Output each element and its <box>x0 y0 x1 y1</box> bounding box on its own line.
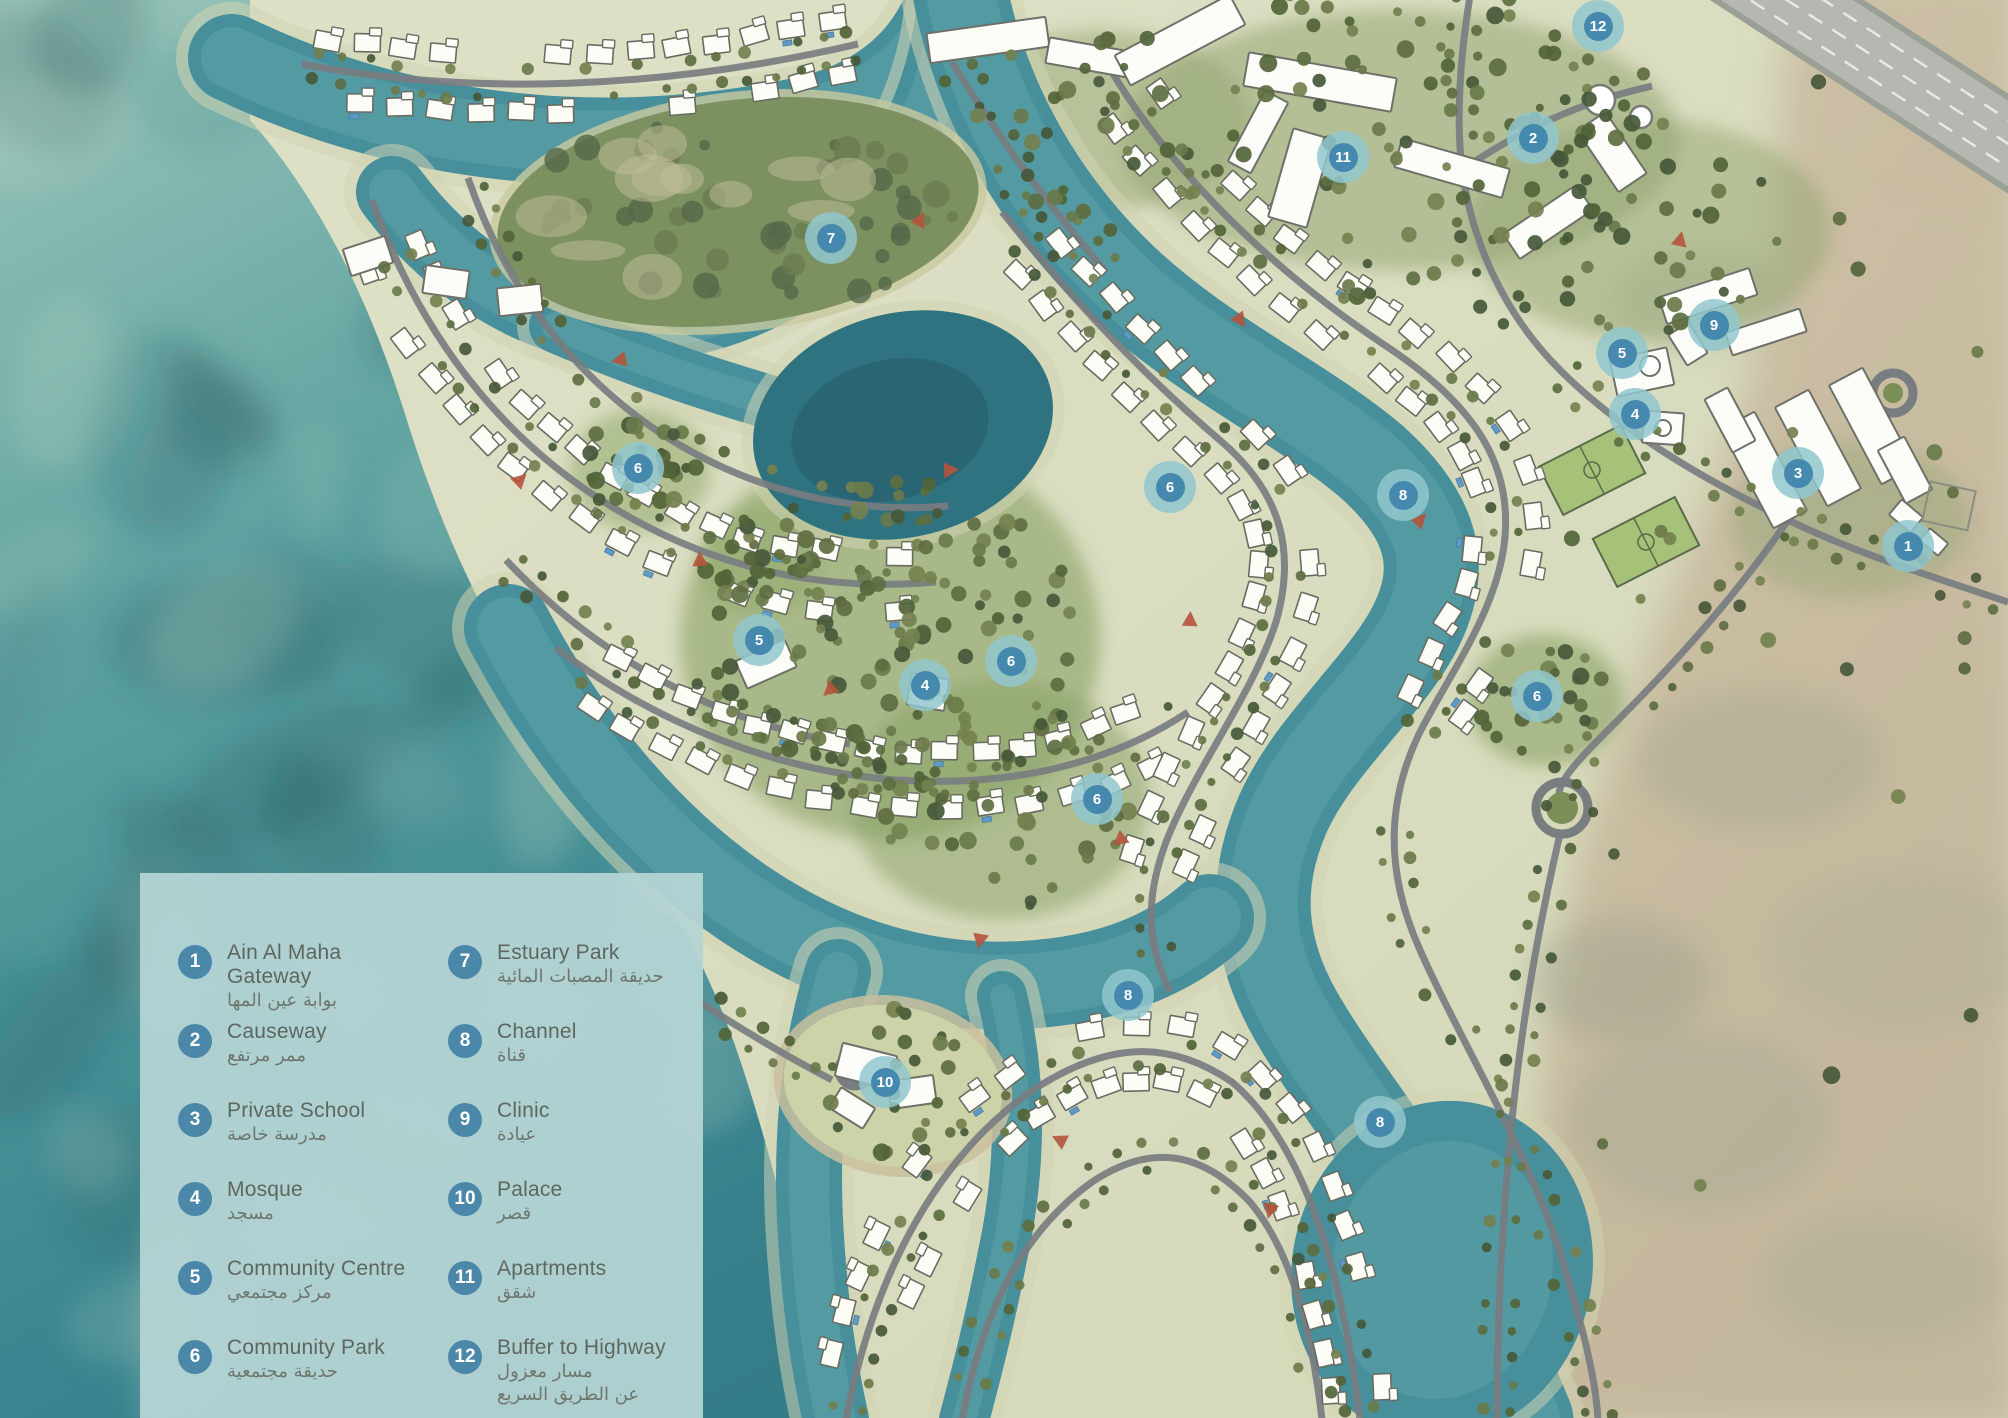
legend-number-badge: 5 <box>178 1261 212 1295</box>
marker-dot: 7 <box>817 224 846 253</box>
map-marker-6-15[interactable]: 6 <box>1511 670 1563 722</box>
legend-label-ar: مسار معزول عن الطريق السريع <box>497 1361 666 1406</box>
marker-dot: 10 <box>871 1068 900 1097</box>
legend-label-en: Apartments <box>497 1257 606 1281</box>
marker-dot: 5 <box>1608 339 1637 368</box>
marker-number: 4 <box>1631 407 1639 422</box>
marker-dot: 8 <box>1389 481 1418 510</box>
legend-label-en: Buffer to Highway <box>497 1336 666 1360</box>
map-marker-6-8[interactable]: 6 <box>612 442 664 494</box>
legend-item-3: 3Private Schoolمدرسة خاصة <box>140 1099 410 1178</box>
map-marker-11-2[interactable]: 11 <box>1317 131 1369 183</box>
legend-label-en: Palace <box>497 1178 562 1202</box>
legend-item-1: 1Ain Al Maha Gatewayبوابة عين المها <box>140 941 410 1020</box>
legend-item-9: 9Clinicعيادة <box>410 1099 703 1178</box>
legend-number-badge: 3 <box>178 1103 212 1137</box>
legend-label-en: Private School <box>227 1099 365 1123</box>
marker-number: 1 <box>1904 539 1912 554</box>
legend-item-7: 7Estuary Parkحديقة المصبات المائية <box>410 941 703 1020</box>
legend-label-ar: عيادة <box>497 1124 550 1147</box>
legend-label-ar: ممر مرتفع <box>227 1045 327 1068</box>
legend-label-ar: قصر <box>497 1203 562 1226</box>
legend-item-11: 11Apartmentsشقق <box>410 1257 703 1336</box>
marker-dot: 6 <box>1523 682 1552 711</box>
legend-label-ar: حديقة المصبات المائية <box>497 966 664 989</box>
map-marker-9-4[interactable]: 9 <box>1688 299 1740 351</box>
legend-item-10: 10Palaceقصر <box>410 1178 703 1257</box>
marker-number: 6 <box>1093 792 1101 807</box>
map-marker-12-0[interactable]: 12 <box>1572 0 1624 52</box>
marker-dot: 1 <box>1894 532 1923 561</box>
map-marker-5-5[interactable]: 5 <box>1596 327 1648 379</box>
marker-number: 6 <box>634 461 642 476</box>
map-marker-8-17[interactable]: 8 <box>1102 969 1154 1021</box>
map-marker-4-6[interactable]: 4 <box>1609 388 1661 440</box>
legend-label-en: Estuary Park <box>497 941 664 965</box>
marker-number: 10 <box>877 1075 894 1090</box>
legend-number-badge: 2 <box>178 1024 212 1058</box>
marker-number: 5 <box>1618 346 1626 361</box>
legend-list: 1Ain Al Maha Gatewayبوابة عين المها2Caus… <box>140 941 703 1415</box>
marker-number: 11 <box>1335 150 1351 165</box>
map-marker-10-18[interactable]: 10 <box>859 1056 911 1108</box>
map-marker-8-10[interactable]: 8 <box>1377 469 1429 521</box>
map-marker-1-11[interactable]: 1 <box>1882 520 1934 572</box>
marker-dot: 2 <box>1519 124 1548 153</box>
legend-number-badge: 10 <box>448 1182 482 1216</box>
map-marker-6-16[interactable]: 6 <box>1071 773 1123 825</box>
legend-label-en: Clinic <box>497 1099 550 1123</box>
marker-number: 6 <box>1166 480 1174 495</box>
legend-number-badge: 12 <box>448 1340 482 1374</box>
legend-number-badge: 11 <box>448 1261 482 1295</box>
masterplan-page: 12211795436681564668108 1Ain Al Maha Gat… <box>0 0 2008 1418</box>
marker-number: 12 <box>1590 19 1607 34</box>
marker-number: 6 <box>1533 689 1541 704</box>
map-marker-6-9[interactable]: 6 <box>1144 461 1196 513</box>
marker-dot: 6 <box>1083 785 1112 814</box>
map-marker-3-7[interactable]: 3 <box>1772 447 1824 499</box>
legend-label-en: Community Centre <box>227 1257 405 1281</box>
marker-number: 4 <box>921 678 929 693</box>
legend-label-ar: حديقة مجتمعية <box>227 1361 385 1384</box>
legend-number-badge: 8 <box>448 1024 482 1058</box>
marker-dot: 4 <box>911 671 940 700</box>
legend-label-en: Ain Al Maha Gateway <box>227 941 410 989</box>
legend-label-en: Channel <box>497 1020 577 1044</box>
marker-dot: 11 <box>1329 143 1358 172</box>
marker-number: 8 <box>1399 488 1407 503</box>
marker-dot: 6 <box>624 454 653 483</box>
legend-number-badge: 4 <box>178 1182 212 1216</box>
map-marker-8-19[interactable]: 8 <box>1354 1096 1406 1148</box>
legend-label-ar: مركز مجتمعي <box>227 1282 405 1305</box>
marker-number: 5 <box>755 633 763 648</box>
legend-number-badge: 6 <box>178 1340 212 1374</box>
legend-item-8: 8Channelقناة <box>410 1020 703 1099</box>
marker-number: 7 <box>827 231 835 246</box>
legend-item-6: 6Community Parkحديقة مجتمعية <box>140 1336 410 1415</box>
legend-number-badge: 1 <box>178 945 212 979</box>
marker-number: 9 <box>1710 318 1718 333</box>
map-marker-2-1[interactable]: 2 <box>1507 112 1559 164</box>
legend-label-ar: مدرسة خاصة <box>227 1124 365 1147</box>
map-marker-4-14[interactable]: 4 <box>899 659 951 711</box>
marker-number: 3 <box>1794 466 1802 481</box>
legend-item-12: 12Buffer to Highwayمسار معزول عن الطريق … <box>410 1336 703 1415</box>
map-marker-6-13[interactable]: 6 <box>985 635 1037 687</box>
marker-dot: 3 <box>1784 459 1813 488</box>
legend-label-ar: مسجد <box>227 1203 303 1226</box>
map-marker-7-3[interactable]: 7 <box>805 212 857 264</box>
legend-label-en: Community Park <box>227 1336 385 1360</box>
marker-dot: 9 <box>1700 311 1729 340</box>
marker-number: 8 <box>1376 1115 1384 1130</box>
legend-number-badge: 7 <box>448 945 482 979</box>
map-marker-5-12[interactable]: 5 <box>733 614 785 666</box>
legend-label-ar: بوابة عين المها <box>227 990 410 1013</box>
marker-number: 2 <box>1529 131 1537 146</box>
marker-dot: 6 <box>997 647 1026 676</box>
marker-number: 6 <box>1007 654 1015 669</box>
legend-label-ar: شقق <box>497 1282 606 1305</box>
legend-label-en: Causeway <box>227 1020 327 1044</box>
legend-label-ar: قناة <box>497 1045 577 1068</box>
marker-dot: 5 <box>745 626 774 655</box>
legend-panel: 1Ain Al Maha Gatewayبوابة عين المها2Caus… <box>140 873 703 1418</box>
legend-item-2: 2Causewayممر مرتفع <box>140 1020 410 1099</box>
marker-dot: 12 <box>1584 12 1613 41</box>
legend-item-5: 5Community Centreمركز مجتمعي <box>140 1257 410 1336</box>
legend-label-en: Mosque <box>227 1178 303 1202</box>
marker-number: 8 <box>1124 988 1132 1003</box>
marker-dot: 6 <box>1156 473 1185 502</box>
legend-number-badge: 9 <box>448 1103 482 1137</box>
marker-dot: 8 <box>1366 1108 1395 1137</box>
marker-dot: 4 <box>1621 400 1650 429</box>
legend-item-4: 4Mosqueمسجد <box>140 1178 410 1257</box>
marker-dot: 8 <box>1114 981 1143 1010</box>
